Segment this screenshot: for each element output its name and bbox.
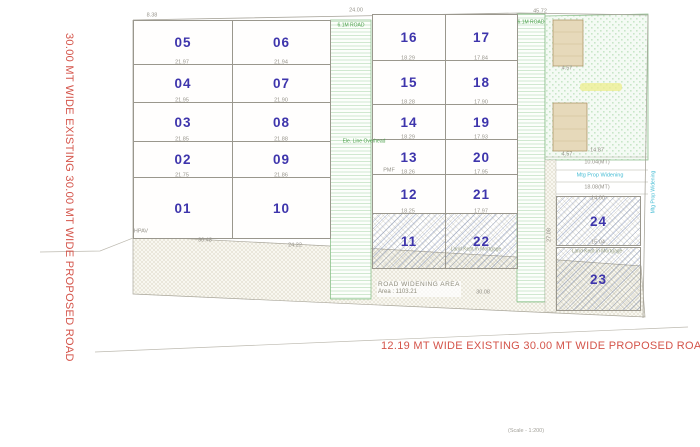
dimension-label: 14.87 [590, 148, 604, 154]
dimension-label: 17.93 [474, 135, 488, 141]
plot-number: 12 [400, 187, 417, 202]
dimension-label: 30.08 [476, 290, 490, 296]
plot-number: 08 [273, 115, 290, 130]
dimension-label: 18.29 [401, 135, 415, 141]
dimension-label: 17.84 [474, 56, 488, 62]
internal-road-strip-1 [331, 20, 372, 299]
plot-number: 20 [473, 150, 490, 165]
plot-number: 07 [273, 76, 290, 91]
plot-number: 10 [273, 201, 290, 216]
dimension-label: 18.28 [401, 100, 415, 106]
building-2 [553, 103, 587, 151]
pmf-marker: PMF [383, 168, 395, 174]
plot-number: 03 [174, 115, 191, 130]
dimension-label: 30.48 [198, 238, 212, 244]
internal-road-strip-2 [517, 14, 545, 302]
plot-number: 19 [473, 115, 490, 130]
hpav-marker: HPAV [134, 229, 148, 235]
mtg-widening-note: Mtg Prop Widening [577, 173, 624, 179]
dimension-label: 24.22 [288, 243, 302, 249]
plot-number: 11 [401, 234, 417, 249]
plot-number: 18 [473, 75, 490, 90]
plot-cell-15: 15 [372, 60, 446, 105]
dimension-label: 21.94 [274, 60, 288, 66]
dimension-label: 21.88 [274, 137, 288, 143]
site-plan-drawing: 05 06 04 07 03 08 02 09 01 10 16 17 15 1… [0, 0, 700, 447]
bottom-road-label: 12.19 MT WIDE EXISTING 30.00 MT WIDE PRO… [381, 340, 700, 352]
left-road-label: 30.00 MT WIDE EXISTING 30.00 MT WIDE PRO… [63, 33, 75, 362]
plot-number: 21 [473, 187, 490, 202]
plot-number: 23 [590, 272, 607, 287]
internal-road-label-2: 6.1M ROAD [518, 21, 545, 26]
dimension-label: 18.25 [401, 209, 415, 215]
plot-number: 04 [174, 76, 191, 91]
dimension-label: 21.97 [175, 60, 189, 66]
dimension-label: 21.86 [274, 173, 288, 179]
plot-cell-05: 05 [133, 20, 233, 65]
plot-number: 09 [273, 152, 290, 167]
land-mortgage-note-2: Land Kept in Mortgage [572, 250, 623, 255]
plot-number: 14 [400, 115, 417, 130]
dimension-label: 17.97 [474, 209, 488, 215]
plot-number: 13 [400, 150, 417, 165]
dimension-label: 27.08 [547, 228, 553, 242]
scale-note: (Scale - 1:200) [508, 428, 544, 434]
dimension-label: 4.57 [562, 66, 573, 72]
dimension-label: 4.57 [562, 152, 573, 158]
plot-cell-10: 10 [232, 177, 331, 239]
plot-cell-23: 23 [556, 247, 641, 311]
plot-number: 16 [400, 30, 417, 45]
dimension-label: 10.04(MT) [584, 160, 609, 166]
plot-cell-06: 06 [232, 20, 331, 65]
open-space-label-highlight [580, 83, 622, 91]
plot-cell-16: 16 [372, 14, 446, 61]
dimension-label: 14.00 [591, 196, 605, 202]
plot-cell-17: 17 [445, 14, 518, 61]
plot-number: 24 [590, 214, 607, 229]
plot-cell-22: 22 [445, 213, 518, 269]
internal-road-label-1: 6.1M ROAD [338, 24, 365, 29]
dimension-label: 18.26 [401, 170, 415, 176]
dimension-label: 17.95 [474, 170, 488, 176]
plot-cell-18: 18 [445, 60, 518, 105]
plot-number: 02 [174, 152, 191, 167]
plot-number: 05 [174, 35, 191, 50]
mtg-widening-note-vertical: Mtg Prop Widening [652, 171, 657, 214]
dimension-label: 18.08(MT) [584, 185, 609, 191]
electric-line-note: Ele. Line Overhead [343, 140, 386, 145]
dimension-label: 21.75 [175, 173, 189, 179]
plot-number: 01 [174, 201, 191, 216]
left-road-edge [40, 238, 133, 252]
dimension-label: 17.90 [474, 100, 488, 106]
building-1 [553, 20, 583, 66]
dimension-label: 24.00 [349, 8, 363, 14]
dimension-label: 21.95 [175, 98, 189, 104]
plot-number: 15 [400, 75, 417, 90]
dimension-label: 8.38 [147, 13, 158, 19]
land-mortgage-note-1: Land Kept in Mortgage [451, 248, 502, 253]
road-widening-area-value: Area : 1103.21 [378, 289, 460, 297]
dimension-label: 18.29 [401, 56, 415, 62]
road-widening-title: ROAD WIDENING AREA [378, 281, 460, 289]
plot-number: 17 [473, 30, 490, 45]
road-widening-label: ROAD WIDENING AREA Area : 1103.21 [377, 281, 461, 297]
plot-cell-11: 11 [372, 213, 446, 269]
dimension-label: 15.04 [591, 240, 605, 246]
plot-number: 06 [273, 35, 290, 50]
dimension-label: 21.90 [274, 98, 288, 104]
dimension-label: 45.72 [533, 9, 547, 15]
dimension-label: 21.85 [175, 137, 189, 143]
